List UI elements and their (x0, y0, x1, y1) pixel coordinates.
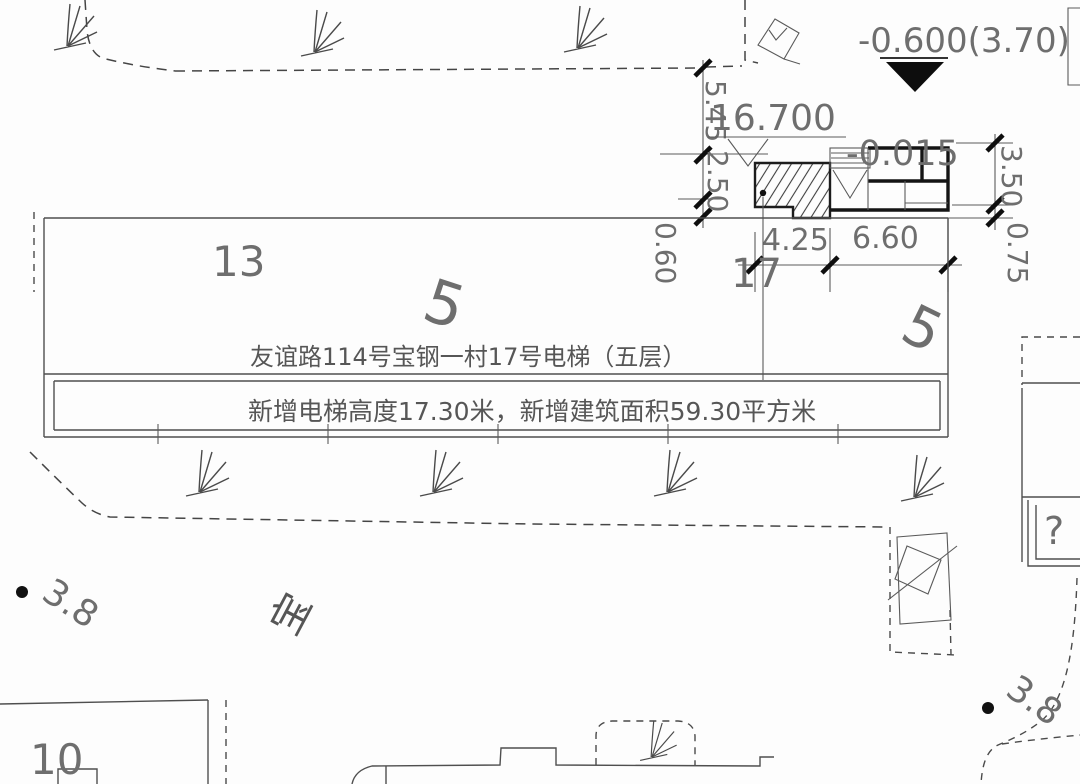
tilted-square-tail (784, 59, 800, 64)
dim-3-50-label: 3.50 (995, 145, 1028, 207)
road-5-right-label: 5 (892, 292, 953, 366)
boundary-marker-square (758, 19, 800, 64)
dimension-chain-bottom: 4.25 6.60 17 (731, 218, 962, 297)
boundary-curve-left (85, 0, 175, 71)
spot-elevation-right-label: 3.8 (999, 668, 1069, 734)
road-edge-dashed (30, 450, 944, 527)
site-plan-drawing: -0.600(3.70) 5.45 2.50 0.60 16.700 (0, 0, 1080, 784)
tilted-square-icon (895, 546, 941, 594)
small-structure (888, 527, 957, 655)
path-dashed-branch (1002, 735, 1080, 744)
slope-arrow-icon (301, 10, 344, 56)
dim-0-75-label: 0.75 (1001, 222, 1034, 284)
level-16700-label: 16.700 (710, 98, 836, 139)
slope-arrow-icon (186, 450, 229, 496)
slope-arrow-icon (654, 450, 697, 496)
small-structure-outline (897, 533, 951, 624)
dim-2-50-label: 2.50 (701, 150, 734, 212)
datum-elevation-label: -0.600(3.70) (858, 21, 1070, 61)
slope-arrow-icon (54, 4, 97, 50)
spot-elevation-dot (16, 586, 28, 598)
boundary-line-top (175, 68, 700, 71)
level-minus0015-triangle-icon (833, 170, 867, 198)
slope-arrow-icon (640, 721, 677, 760)
boundary-line-top-right (706, 66, 742, 67)
tilted-square-check (769, 28, 787, 40)
datum-elevation-marker: -0.600(3.70) (858, 21, 1070, 92)
entrance-structure: -0.015 (830, 134, 959, 210)
new-elevator-outline (755, 163, 830, 218)
dimension-chain-right: 3.50 0.75 (948, 134, 1034, 284)
dim-6-60-label: 6.60 (852, 221, 919, 256)
road-5-left-label: 5 (415, 266, 473, 344)
building-right-edge: ? (1022, 337, 1080, 566)
building-bottom-outline (352, 748, 774, 784)
slope-arrow-icon (901, 455, 944, 501)
site-plan-canvas: -0.600(3.70) 5.45 2.50 0.60 16.700 (0, 0, 1080, 784)
building-13-label: 13 (212, 237, 265, 286)
building-10-label: 10 (30, 735, 83, 784)
datum-triangle-icon (886, 62, 944, 92)
unit-17-label: 17 (731, 251, 782, 297)
estate-character-label: 宝 (262, 586, 321, 643)
level-minus0015-label: -0.015 (846, 134, 959, 174)
planting-bed-dashed (596, 721, 695, 765)
slope-arrow-icon (564, 6, 607, 52)
boundary-line-vertical (745, 0, 758, 63)
spot-elevation-left-label: 3.8 (35, 571, 105, 637)
left-annotations: 3.8 宝 (16, 571, 322, 643)
tilted-square-icon (758, 19, 799, 59)
building-10: 10 (0, 700, 226, 784)
annotation-line2: 新增电梯高度17.30米，新增建筑面积59.30平方米 (248, 397, 816, 426)
slope-arrow-icon (420, 450, 463, 496)
bottom-right-area: 3.8 (981, 578, 1080, 784)
annotation-line1: 友谊路114号宝钢一村17号电梯（五层） (250, 343, 686, 371)
slope-arrow-icons-top (54, 4, 607, 56)
unknown-mark-label: ? (1044, 509, 1064, 553)
dim-0-60-label: 0.60 (649, 222, 682, 284)
building-bottom-center (352, 721, 774, 784)
site-boundary-top (85, 0, 758, 71)
leader-dot (760, 190, 766, 196)
spot-elevation-dot (982, 702, 994, 714)
building-10-top (0, 700, 208, 704)
building-right-dash-corner (1022, 337, 1080, 385)
